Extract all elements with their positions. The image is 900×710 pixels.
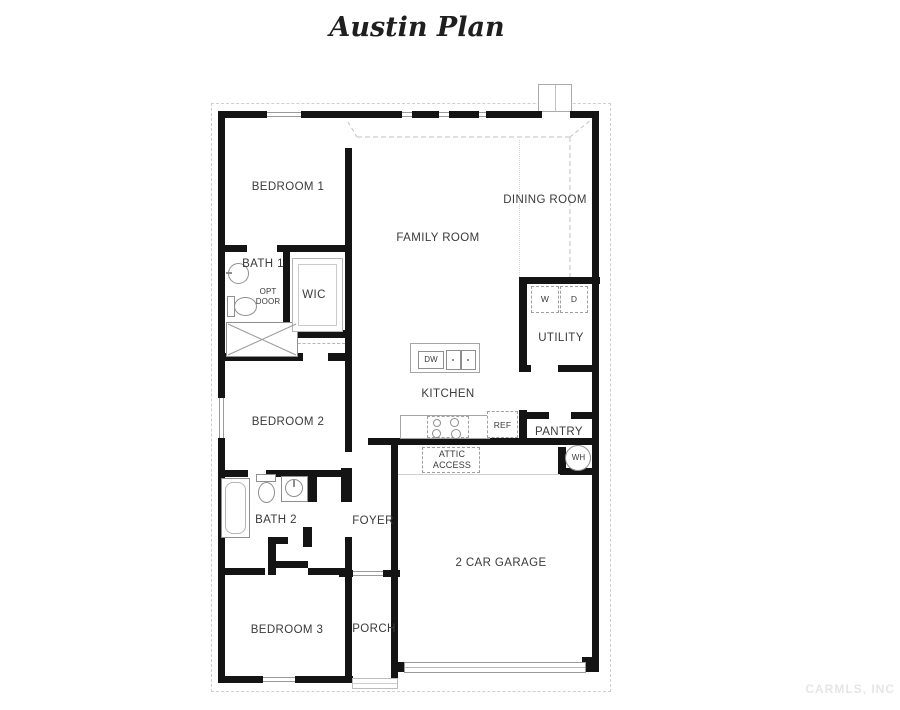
wall-segment — [303, 527, 312, 547]
label-water-heater: WH — [566, 453, 591, 463]
front-door-threshold — [353, 571, 383, 576]
wall-segment — [218, 470, 248, 477]
wall-segment — [449, 111, 479, 118]
bath2-sink-faucet — [293, 480, 295, 487]
floor-plan: Austin Plan — [0, 0, 900, 710]
bath1-shower — [226, 322, 298, 357]
room-label-dining-room: DINING ROOM — [495, 193, 595, 207]
wall-segment — [527, 412, 549, 419]
window — [402, 112, 412, 117]
room-label-porch: PORCH — [349, 622, 399, 636]
wall-segment — [308, 568, 345, 575]
room-label-family-room: FAMILY ROOM — [388, 231, 488, 245]
wall-segment — [218, 568, 265, 575]
burner — [450, 418, 459, 427]
bath2-toilet-bowl — [258, 482, 275, 503]
window — [439, 112, 449, 117]
wall-segment — [391, 441, 398, 688]
wall-segment — [277, 245, 345, 252]
watermark: CARMLS, INC — [780, 682, 895, 696]
window — [263, 677, 295, 682]
wall-segment — [218, 111, 267, 118]
label-washer: W — [531, 294, 559, 304]
label-opt-door: OPT DOOR — [249, 287, 287, 307]
burner — [432, 429, 441, 438]
label-dw: DW — [418, 355, 444, 365]
wall-segment — [412, 111, 439, 118]
wall-segment — [558, 365, 599, 372]
wall-segment — [328, 353, 345, 361]
room-label-kitchen: KITCHEN — [408, 387, 488, 401]
room-label-garage: 2 CAR GARAGE — [441, 556, 561, 570]
bath2-tub-inner — [225, 482, 246, 534]
wall-segment — [519, 277, 527, 372]
porch-edge-line — [353, 683, 397, 684]
window — [267, 112, 301, 117]
wall-segment — [308, 475, 317, 502]
wall-segment — [218, 245, 247, 252]
room-label-foyer: FOYER — [348, 514, 398, 528]
wall-segment — [345, 148, 352, 452]
bath1-sink-faucet — [226, 272, 232, 274]
window — [479, 112, 486, 117]
plan-title: Austin Plan — [267, 12, 567, 43]
wall-segment — [268, 537, 288, 544]
bath2-toilet-tank — [256, 474, 276, 482]
garage-slab-line — [398, 474, 560, 475]
sink-drain-dot — [467, 359, 469, 361]
room-label-wic: WIC — [294, 288, 334, 302]
ceiling-break-line — [519, 140, 520, 277]
room-label-bedroom1: BEDROOM 1 — [238, 180, 338, 194]
label-dryer: D — [560, 294, 588, 304]
window — [219, 398, 224, 438]
wall-segment — [218, 676, 263, 683]
room-label-bath2: BATH 2 — [246, 513, 306, 527]
burner — [433, 419, 441, 427]
wall-segment — [519, 277, 600, 284]
room-label-bath1: BATH 1 — [242, 257, 284, 271]
garage-door-line — [405, 667, 585, 668]
room-label-pantry: PANTRY — [519, 425, 599, 439]
burner — [451, 429, 461, 439]
chimney-line — [555, 85, 556, 111]
room-label-utility: UTILITY — [521, 331, 601, 345]
wall-segment — [301, 111, 402, 118]
wall-segment — [571, 412, 592, 419]
wall-segment — [519, 365, 531, 372]
room-label-bedroom2: BEDROOM 2 — [238, 415, 338, 429]
label-ref: REF — [487, 420, 518, 430]
wall-segment — [486, 111, 542, 118]
room-label-bedroom3: BEDROOM 3 — [237, 623, 337, 637]
sink-drain-dot — [452, 359, 454, 361]
label-attic-access: ATTIC ACCESS — [423, 449, 481, 471]
wall-segment — [276, 561, 308, 568]
wall-segment — [592, 447, 599, 657]
